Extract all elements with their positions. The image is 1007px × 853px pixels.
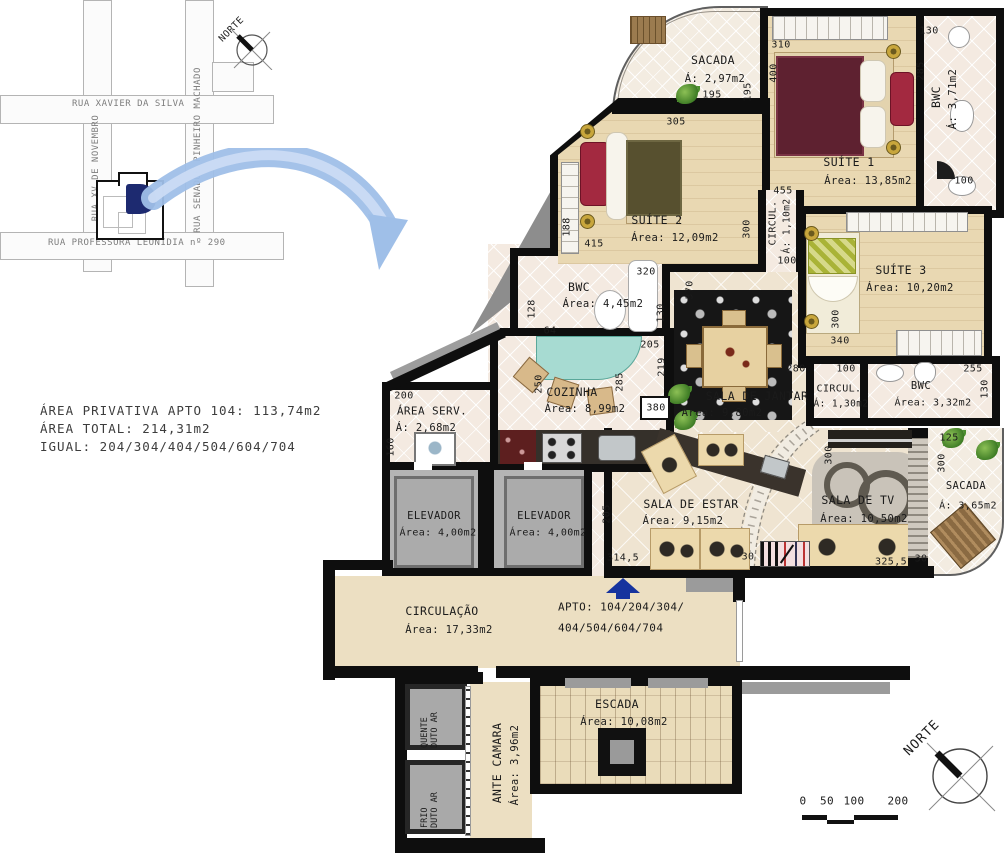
room-area-label: Á: 3,65m2 [939,501,997,512]
wall-stub-gray [742,682,890,694]
bed-suite2-pillows [606,132,628,220]
room-area-label: Á: 3,71m2 [947,69,959,130]
room-circulacao [335,576,740,668]
lamp-suite2-top [580,124,595,139]
bed-suite1-pillow1 [860,60,886,102]
hall-wall-bottom2 [496,666,744,678]
dim-label: 300 [831,309,842,328]
dim-label: 255 [963,364,982,375]
dim-label: 100 [954,176,973,187]
dim-label: 370 [685,280,696,299]
map-pointer-arrow [138,148,413,293]
room-label: ÁREA SERV. [397,405,467,418]
scale-segment-3 [854,815,898,820]
wardrobe-suite3-bottom [896,330,982,356]
dim-label: 30 [742,552,755,563]
dim-label: 310 [771,40,790,51]
room-area-label: Á: 1,30m2 [813,399,868,410]
room-area-label: Área: 4,45m2 [563,298,644,310]
dim-label: 325,5 [875,557,907,568]
scale-tick-50: 50 [820,795,834,808]
dim-label: 64 [544,326,557,337]
dim-label: 160 [386,437,397,456]
dim-label: 128 [527,299,538,318]
dim-label: 195 [743,82,754,101]
info-igual: IGUAL: 204/304/404/504/604/704 [40,438,321,456]
room-area-label: Área: 3,96m2 [509,725,521,806]
dim-label: 300 [824,445,835,464]
bed-suite1-pillow2 [860,106,886,148]
washer-icon [414,432,456,466]
scale-tick-200: 200 [887,795,908,808]
elevator2-cage [504,476,584,568]
balcony-rug [630,16,666,44]
apto-numbers-line2: 404/504/604/704 [558,622,663,635]
wall-stub-right [742,666,910,680]
scale-bar: 0 50 100 200 [790,793,925,831]
room-area-label: Área: 9,15m2 [643,515,724,527]
wall-sacada-suite2 [612,104,768,114]
sofa-estar-1 [650,528,700,570]
dim-label: 285 [615,372,626,391]
room-area-label: Área: 10,50m2 [820,513,907,525]
dim-label: 195 [702,90,721,101]
elevator2-door-gap [524,462,542,470]
wardrobe-suite3-top [846,212,968,232]
room-label: CIRCULAÇÃO [405,604,478,618]
room-area-label: Área: 13,85m2 [824,175,911,187]
room-area-label: Área: 4,00m2 [509,528,586,539]
room-label: ELEVADOR [407,510,461,522]
sofa-estar-2 [700,528,750,570]
hall-wall-right-top [733,576,745,602]
stair-landing-inner [610,740,634,764]
room-area-label: Área: 10,20m2 [866,282,953,294]
room-area-label: Área: 8,99m2 [545,403,626,415]
info-area-privativa: ÁREA PRIVATIVA APTO 104: 113,74m2 [40,402,321,420]
duto-quente-line1: DUTO AR [430,688,440,748]
lamp-suite3-bottom [804,314,819,329]
duto-door-strip [465,686,471,836]
entrance-arrow-icon [606,578,640,593]
lamp-suite3-top [804,226,819,241]
dim-label: 250 [534,374,545,393]
dim-label: 205 [640,340,659,351]
street-label-xavier: RUA XAVIER DA SILVA [72,99,184,109]
info-area-total: ÁREA TOTAL: 214,31m2 [40,420,321,438]
room-label: ESCADA [595,697,639,711]
dim-label: 200 [394,391,413,402]
dim-label: 314,5 [607,553,639,564]
dim-label: 300 [937,453,948,472]
room-label: SALA DE JANTAR [706,389,809,403]
room-label: BWC [568,280,590,294]
elevator-divider-wall [478,462,494,576]
lamp-suite1-bottom [886,140,901,155]
duto-wall-bottom [395,838,545,853]
hall-door-leaf [736,600,743,662]
pantry-cabinet [500,430,536,464]
room-label: ANTE CAMARA [490,723,504,804]
room-area-label: Á: 1,10m2 [782,198,793,253]
dim-label: 415 [584,239,603,250]
apto-numbers-line1: APTO: 104/204/304/ [558,601,684,614]
escada-niche2 [648,678,708,688]
dim-label: 455 [773,186,792,197]
dim-label: 340 [830,336,849,347]
dining-table [702,326,768,388]
duto-frio-line1: DUTO AR [430,768,440,828]
scale-tick-0: 0 [799,795,806,808]
duto-wall-top [395,672,483,684]
duto-frio-line2: FRIO [420,768,430,828]
room-label: CIRCUL. [768,201,779,246]
room-area-label: Á: 2,68m2 [396,422,457,434]
duto-quente-label: QUENTE DUTO AR [420,688,456,748]
dim-label: 285 [916,61,927,80]
dim-label: 130 [919,26,938,37]
dim-label: 130 [656,303,667,322]
room-label: ELEVADOR [517,510,571,522]
dim-label: 205 [602,504,613,523]
dim-label: 280 [786,364,805,375]
elevator1-door-gap [414,462,432,470]
room-label: SALA DE ESTAR [643,497,738,511]
sink-bwc445 [594,290,626,330]
room-area-label: Área: 17,33m2 [405,624,492,636]
room-area-label: Área: 9,80m2 [682,407,763,419]
dining-chair-left [686,344,702,368]
room-label: CIRCUL. [817,384,862,395]
dim-label: 100 [836,364,855,375]
bed-suite3-pillows [808,238,856,274]
elevator1-cage [394,476,474,568]
dim-label: 30 [915,554,928,565]
room-label: BWC [911,380,931,392]
stove-icon [542,433,582,463]
wardrobe-suite2 [561,162,579,254]
duto-quente-line2: QUENTE [420,688,430,748]
duto-frio-label: FRIO DUTO AR [420,768,456,828]
room-label: SACADA [691,53,735,67]
kitchen-sink-icon [598,435,636,461]
dim-label: 188 [562,217,573,236]
hall-wall-left [323,560,335,680]
room-label: COZINHA [546,385,597,399]
scale-segment-1 [802,815,827,820]
floorplan-page: RUA XAVIER DA SILVA RUA XV DE NOVEMBRO R… [0,0,1007,853]
room-area-label: Área: 4,00m2 [399,528,476,539]
hall-niche-gray [686,578,734,592]
area-info-block: ÁREA PRIVATIVA APTO 104: 113,74m2 ÁREA T… [40,402,321,456]
room-label: SACADA [946,480,986,492]
dining-chair-right [766,344,782,368]
room-area-label: Á: 2,97m2 [685,73,746,85]
sink-bwc332 [876,364,904,382]
wardrobe-suite1 [772,16,888,40]
armchair-estar-2 [698,434,744,466]
scale-segment-2 [827,820,854,824]
lamp-suite2-bottom [580,214,595,229]
dim-label: 300 [742,219,753,238]
room-label: BWC [929,86,943,108]
dining-chair-top [722,310,746,326]
dim-label: 130 [980,379,991,398]
armchair-suite1 [890,72,914,126]
dim-label: 100 [777,256,796,267]
entrance-arrow-tail [616,592,630,599]
bed-suite2-blanket [626,140,682,216]
dim-label: 400 [769,63,780,82]
scale-tick-100: 100 [843,795,864,808]
bed-suite1-blanket [776,56,864,156]
dim-label: 320 [636,267,655,278]
room-label: SALA DE TV [821,493,894,507]
dim-label: 219 [657,357,668,376]
room-area-label: Área: 3,32m2 [894,398,971,409]
escada-niche1 [565,678,631,688]
dim-label: 305 [666,117,685,128]
room-label: SUÍTE 1 [823,155,874,169]
dim-label: 125 [939,433,958,444]
sink-bwc-suite1 [948,26,970,48]
room-area-label: Área: 12,09m2 [631,232,718,244]
lamp-suite1-top [886,44,901,59]
map-compass-icon [228,24,274,70]
hall-wall-topleft [323,560,393,570]
room-label: SUÍTE 2 [631,213,682,227]
room-label: SUÍTE 3 [875,263,926,277]
tv-console [828,430,912,448]
room-area-label: Área: 10,08m2 [580,716,667,728]
dim-label-380: 380 [646,403,665,414]
window-wall-tv-sacada [908,428,928,572]
